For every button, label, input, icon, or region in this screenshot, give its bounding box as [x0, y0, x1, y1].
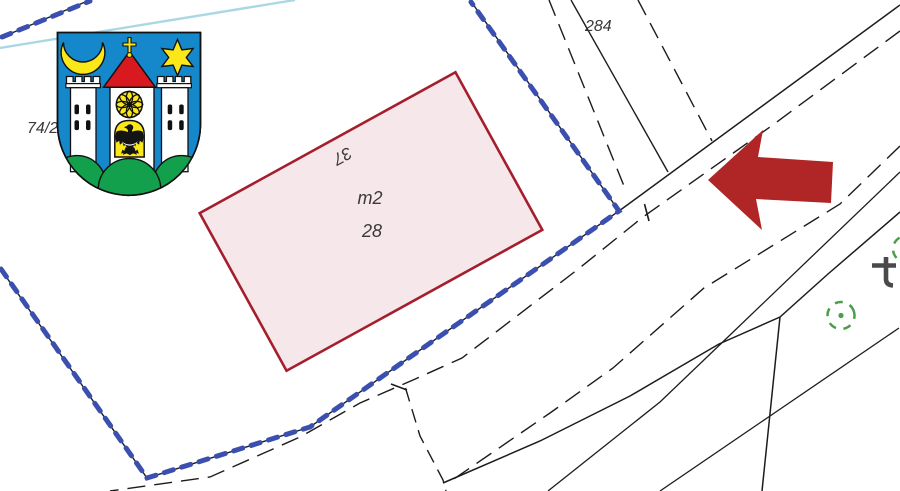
- svg-text:28: 28: [361, 221, 382, 241]
- svg-text:284: 284: [584, 18, 612, 35]
- svg-text:m2: m2: [357, 188, 382, 208]
- svg-text:74/2: 74/2: [27, 120, 58, 137]
